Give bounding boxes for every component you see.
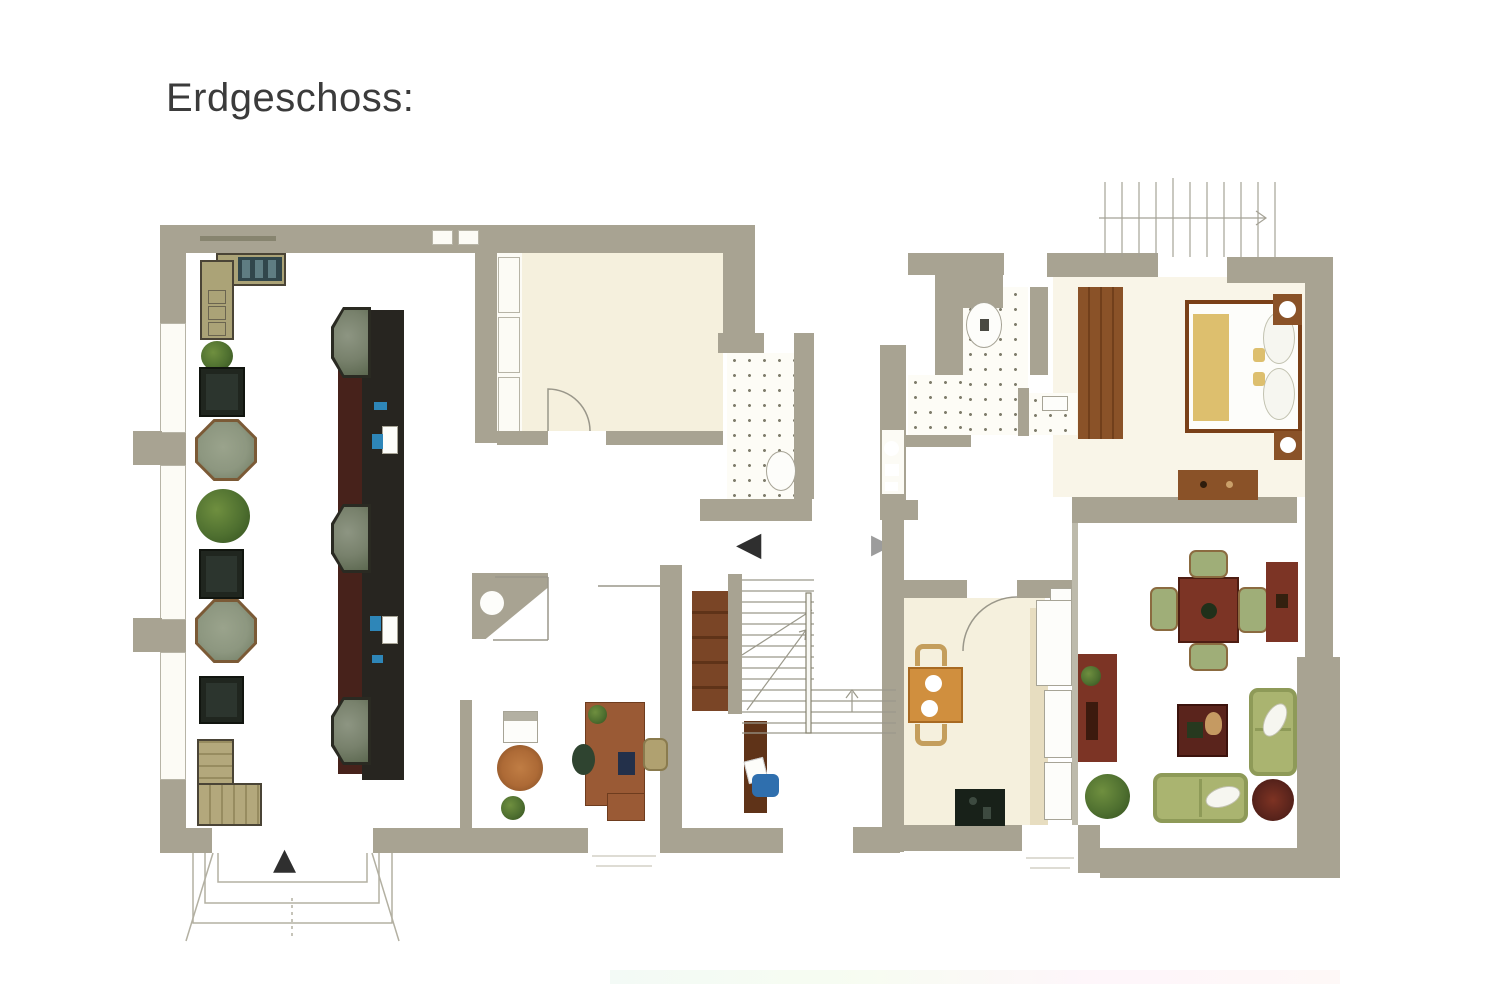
scan-artifact xyxy=(610,970,1340,984)
exterior-stairs xyxy=(1099,178,1275,257)
linework-overlay xyxy=(0,0,1500,984)
side-door-steps xyxy=(592,856,1074,868)
floor-plan-page: Erdgeschoss: xyxy=(0,0,1500,984)
door-arcs xyxy=(548,389,1017,651)
storage-door-arc xyxy=(548,389,590,431)
office-partitions xyxy=(493,577,660,640)
stair-handrail xyxy=(806,593,811,733)
entrance-steps xyxy=(186,853,399,941)
interior-staircase xyxy=(742,580,896,733)
kitchen-door-arc xyxy=(963,597,1017,651)
